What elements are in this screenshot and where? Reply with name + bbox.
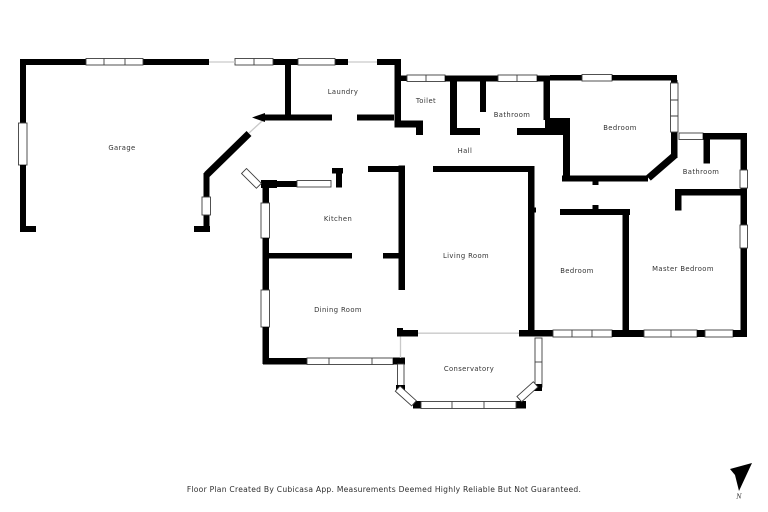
room-label-hall: Hall <box>458 147 473 155</box>
north-label: N <box>736 494 741 501</box>
room-label-master-bedroom: Master Bedroom <box>652 265 714 273</box>
floor-plan-canvas <box>0 0 768 512</box>
master-bedroom-walls <box>531 181 748 337</box>
laundry-walls <box>252 64 423 135</box>
room-label-toilet: Toilet <box>416 97 436 105</box>
living-room-walls <box>368 166 535 337</box>
top-wall <box>22 59 401 66</box>
room-label-dining-room: Dining Room <box>314 306 362 314</box>
room-label-bedroom-middle: Bedroom <box>560 267 594 275</box>
room-label-kitchen: Kitchen <box>324 215 352 223</box>
garage-walls <box>19 59 267 232</box>
chimney-block <box>545 118 570 135</box>
bottom-wall <box>519 330 747 337</box>
footer-disclaimer: Floor Plan Created By Cubicasa App. Meas… <box>0 485 768 494</box>
room-label-bathroom-top: Bathroom <box>494 111 531 119</box>
floor-plan: Garage Laundry Toilet Bathroom Bedroom H… <box>0 0 768 512</box>
room-label-bathroom-right: Bathroom <box>683 168 720 176</box>
room-label-bedroom-top: Bedroom <box>603 124 637 132</box>
room-label-conservatory: Conservatory <box>444 365 494 373</box>
kitchen-walls <box>242 168 405 364</box>
bedroom-diagonal-wall <box>649 156 675 179</box>
room-label-living-room: Living Room <box>443 252 489 260</box>
room-label-laundry: Laundry <box>328 88 359 96</box>
dining-room-walls <box>263 358 405 365</box>
door-leaf <box>252 113 265 122</box>
room-label-garage: Garage <box>108 144 135 152</box>
garage-diagonal-wall <box>207 134 250 176</box>
